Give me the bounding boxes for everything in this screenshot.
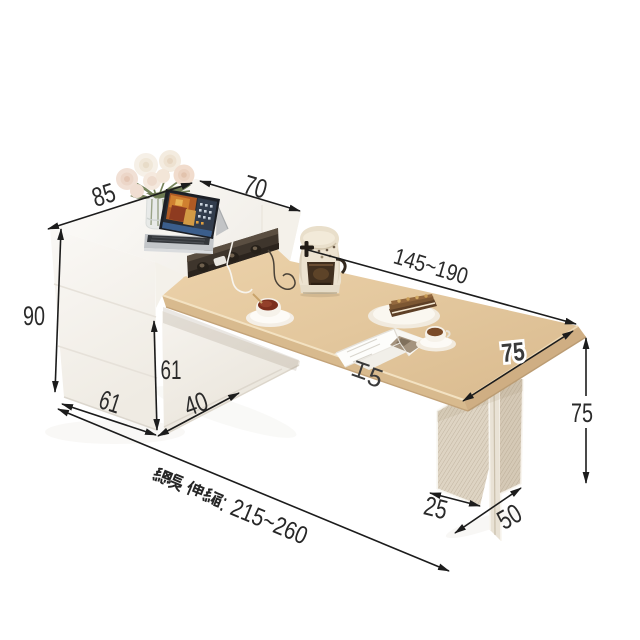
svg-text:90: 90 (23, 301, 45, 331)
svg-text:61: 61 (161, 355, 182, 385)
svg-text:75: 75 (500, 336, 526, 368)
svg-text:75: 75 (571, 398, 593, 428)
